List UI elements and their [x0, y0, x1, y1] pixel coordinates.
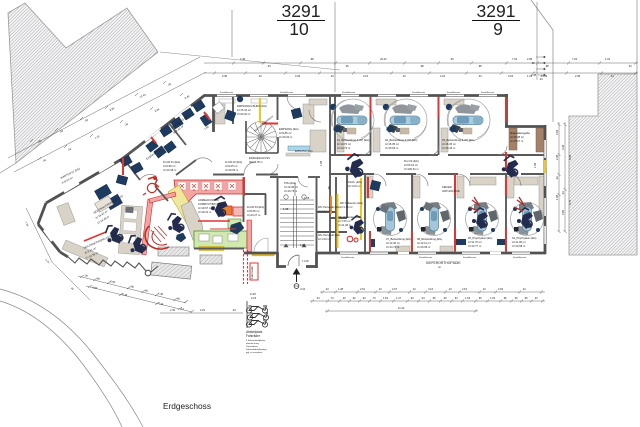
- svg-text:WC Personal (EG): WC Personal (EG): [318, 205, 340, 209]
- svg-text:.62: .62: [352, 296, 356, 300]
- svg-text:EMPFANG (EG): EMPFANG (EG): [295, 150, 313, 153]
- svg-text:.23: .23: [402, 74, 406, 78]
- svg-text:.24: .24: [232, 308, 236, 312]
- svg-text:1.90: 1.90: [158, 291, 164, 296]
- svg-text:Kastellfenster: Kastellfenster: [447, 91, 461, 94]
- svg-text:2.38: 2.38: [555, 154, 559, 160]
- svg-text:.94: .94: [410, 296, 414, 300]
- svg-text:.24: .24: [325, 287, 329, 291]
- svg-text:.98: .98: [531, 61, 535, 65]
- svg-text:A=2.04 m²: A=2.04 m²: [318, 209, 331, 213]
- svg-text:Kastellfenster: Kastellfenster: [220, 91, 234, 94]
- svg-text:WC Patienten (EG): WC Patienten (EG): [340, 201, 363, 205]
- svg-text:3.16: 3.16: [428, 287, 434, 291]
- svg-text:U=16.46 m: U=16.46 m: [442, 146, 456, 150]
- svg-text:U=15.08 m: U=15.08 m: [417, 245, 431, 249]
- svg-text:.13: .13: [482, 287, 486, 291]
- svg-text:überdachung: überdachung: [246, 342, 260, 345]
- svg-text:ORTHOPÄDIE: ORTHOPÄDIE: [442, 189, 460, 193]
- svg-text:.94: .94: [362, 296, 366, 300]
- svg-text:12.43: 12.43: [139, 92, 147, 99]
- svg-text:KOMBI 5/7/8/9 (EG): KOMBI 5/7/8/9 (EG): [198, 202, 222, 206]
- svg-text:1.63: 1.63: [383, 296, 389, 300]
- svg-text:ggf. zu erweitern: ggf. zu erweitern: [246, 351, 263, 354]
- svg-text:U=14.70 m: U=14.70 m: [337, 146, 351, 150]
- svg-text:Kastellfenster: Kastellfenster: [280, 91, 294, 94]
- svg-text:2.46: 2.46: [170, 308, 176, 312]
- svg-text:A=7.05 m²: A=7.05 m²: [338, 219, 351, 223]
- svg-text:KIEFERORTHOPÄDIE: KIEFERORTHOPÄDIE: [426, 261, 461, 265]
- svg-text:2.67: 2.67: [392, 287, 398, 291]
- svg-text:02_Behandlung & OP (EG): 02_Behandlung & OP (EG): [385, 138, 417, 142]
- svg-text:.63: .63: [443, 296, 447, 300]
- svg-text:1.98: 1.98: [203, 124, 210, 131]
- svg-text:5 Fahrradstellplätze: 5 Fahrradstellplätze: [246, 339, 266, 342]
- svg-text:.36: .36: [84, 273, 89, 278]
- svg-text:.36: .36: [124, 122, 129, 127]
- svg-text:Kastellfenster: Kastellfenster: [419, 256, 433, 259]
- svg-text:Kastellfenster: Kastellfenster: [342, 91, 356, 94]
- svg-text:7.04: 7.04: [572, 57, 578, 61]
- svg-text:.98: .98: [310, 57, 314, 61]
- svg-text:± 0.00: ± 0.00: [302, 260, 309, 263]
- svg-text:2.48: 2.48: [240, 57, 246, 61]
- svg-text:05_Prophylaxe (EG): 05_Prophylaxe (EG): [468, 236, 492, 240]
- svg-text:U=100.61 m: U=100.61 m: [404, 167, 419, 171]
- svg-text:.96: .96: [503, 296, 507, 300]
- svg-text:1.98: 1.98: [533, 162, 537, 168]
- svg-text:.36: .36: [345, 64, 349, 68]
- svg-text:3.23: 3.23: [200, 308, 206, 312]
- svg-text:A=9.85 m²: A=9.85 m²: [279, 131, 292, 135]
- svg-text:U=18.31 m: U=18.31 m: [198, 210, 212, 214]
- svg-text:RH=2.78 m: RH=2.78 m: [249, 160, 263, 164]
- svg-text:FLUR 02 (EG): FLUR 02 (EG): [225, 160, 242, 164]
- svg-text:2.48: 2.48: [531, 73, 537, 77]
- svg-text:3.23: 3.23: [251, 296, 257, 300]
- svg-text:TRH (EG): TRH (EG): [284, 181, 296, 185]
- svg-text:FLUR 01 (EG): FLUR 01 (EG): [163, 160, 180, 164]
- svg-text:Fahrräder: Fahrräder: [250, 266, 254, 279]
- svg-text:1.38: 1.38: [338, 287, 344, 291]
- svg-text:.96: .96: [478, 296, 482, 300]
- svg-text:4.85: 4.85: [561, 209, 565, 215]
- svg-text:03_Behandlung & OP (EG): 03_Behandlung & OP (EG): [442, 138, 474, 142]
- svg-text:A=13.11 m²: A=13.11 m²: [417, 241, 431, 245]
- svg-text:.24: .24: [555, 176, 559, 180]
- svg-text:Kastellfenster: Kastellfenster: [412, 91, 426, 94]
- svg-text:9: 9: [493, 19, 503, 39]
- svg-text:2.86: 2.86: [92, 285, 98, 290]
- svg-text:.23: .23: [534, 296, 538, 300]
- svg-text:3291: 3291: [477, 1, 516, 21]
- svg-text:.98: .98: [327, 186, 331, 190]
- svg-text:U=16.00 m: U=16.00 m: [279, 135, 293, 139]
- svg-text:08_Behandlung (EG): 08_Behandlung (EG): [417, 237, 442, 241]
- svg-text:A=8.05 m²: A=8.05 m²: [247, 209, 260, 213]
- svg-text:.42: .42: [67, 147, 72, 152]
- svg-text:4.72: 4.72: [44, 258, 51, 265]
- svg-text:2.84: 2.84: [555, 129, 559, 135]
- svg-text:A=1.53 m²: A=1.53 m²: [318, 237, 331, 241]
- svg-text:7.04: 7.04: [512, 57, 518, 61]
- svg-text:2.48: 2.48: [184, 94, 191, 100]
- svg-text:Putzk. (EG): Putzk. (EG): [348, 180, 362, 184]
- svg-text:01_Behandlung & OP (EG): 01_Behandlung & OP (EG): [337, 138, 369, 142]
- svg-text:Kastellfenster: Kastellfenster: [463, 256, 477, 259]
- svg-text:A=50.61 m²: A=50.61 m²: [404, 163, 418, 167]
- svg-text:1.08: 1.08: [304, 196, 310, 200]
- svg-text:U=13.38 m: U=13.38 m: [163, 168, 177, 172]
- svg-text:2.98: 2.98: [109, 106, 116, 112]
- svg-text:.98: .98: [84, 118, 89, 123]
- svg-text:2.98: 2.98: [527, 57, 533, 61]
- svg-text:.73: .73: [372, 296, 376, 300]
- svg-text:Fahrräder: Fahrräder: [246, 334, 261, 338]
- svg-text:2.20: 2.20: [250, 292, 256, 296]
- svg-text:A=15.35 m²: A=15.35 m²: [385, 142, 399, 146]
- svg-text:3291: 3291: [282, 1, 321, 21]
- svg-text:WC Personal (EG): WC Personal (EG): [318, 233, 340, 237]
- svg-text:ANMELDUNG m²: ANMELDUNG m²: [198, 198, 219, 202]
- svg-text:.94: .94: [454, 296, 458, 300]
- svg-text:U=13.58 m: U=13.58 m: [512, 244, 526, 248]
- svg-text:7.26: 7.26: [24, 221, 30, 228]
- svg-text:1.04: 1.04: [605, 57, 611, 61]
- svg-text:.40: .40: [42, 158, 47, 163]
- svg-text:.23: .23: [330, 74, 334, 78]
- svg-text:.98: .98: [478, 64, 482, 68]
- svg-text:FLUR 03 (EG): FLUR 03 (EG): [247, 205, 264, 209]
- svg-text:3.39: 3.39: [295, 74, 301, 78]
- svg-text:A=13.00 m²: A=13.00 m²: [284, 185, 298, 189]
- svg-text:U=44.27 m: U=44.27 m: [247, 213, 261, 217]
- svg-text:.40: .40: [342, 296, 346, 300]
- svg-text:U=19.66 m: U=19.66 m: [225, 168, 239, 172]
- svg-text:1.53: 1.53: [465, 296, 471, 300]
- svg-text:.98: .98: [545, 64, 549, 68]
- svg-text:10: 10: [289, 19, 309, 39]
- svg-text:A=1.00 m²: A=1.00 m²: [348, 184, 361, 188]
- svg-text:.23: .23: [258, 74, 262, 78]
- svg-text:A=19.67 m²: A=19.67 m²: [198, 206, 212, 210]
- svg-text:3.38: 3.38: [222, 74, 228, 78]
- svg-text:32.23: 32.23: [380, 57, 387, 61]
- svg-text:U=15.69 m: U=15.69 m: [385, 146, 399, 150]
- svg-text:.13: .13: [412, 287, 416, 291]
- svg-text:3.38: 3.38: [561, 144, 565, 150]
- svg-text:Kastellfenster: Kastellfenster: [513, 256, 527, 259]
- svg-text:.04: .04: [421, 296, 425, 300]
- svg-text:.96: .96: [524, 296, 528, 300]
- svg-text:U=15.76 m: U=15.76 m: [284, 189, 298, 193]
- svg-text:1.47: 1.47: [396, 296, 402, 300]
- svg-text:A=13.40 m²: A=13.40 m²: [386, 241, 400, 245]
- svg-text:.36: .36: [514, 296, 518, 300]
- svg-text:Vorhandene: Vorhandene: [246, 345, 259, 348]
- svg-text:2.48: 2.48: [575, 74, 581, 78]
- svg-text:1.08: 1.08: [300, 243, 306, 247]
- svg-text:2.63: 2.63: [498, 287, 504, 291]
- svg-text:1.19: 1.19: [94, 134, 101, 140]
- svg-text:.98: .98: [420, 64, 424, 68]
- svg-text:EMPFANG (EG): EMPFANG (EG): [279, 127, 299, 131]
- svg-text:A=15.42 m²: A=15.42 m²: [237, 108, 251, 112]
- svg-text:8.28: 8.28: [568, 154, 572, 160]
- svg-text:.96: .96: [432, 296, 436, 300]
- svg-text:4.23: 4.23: [440, 74, 446, 78]
- svg-text:.23: .23: [478, 74, 482, 78]
- svg-text:U=14.70 m: U=14.70 m: [386, 245, 400, 249]
- svg-text:.24: .24: [522, 287, 526, 291]
- svg-text:A=6.96 m²: A=6.96 m²: [163, 164, 176, 168]
- svg-text:WC Patienten (EG): WC Patienten (EG): [338, 215, 361, 219]
- svg-text:4.15: 4.15: [363, 74, 369, 78]
- svg-text:Kastellfenster: Kastellfenster: [481, 91, 495, 94]
- svg-text:EMPFANGS BÜRO (EG): EMPFANGS BÜRO (EG): [237, 104, 267, 108]
- svg-text:3.48: 3.48: [122, 292, 128, 297]
- svg-text:m²: m²: [438, 266, 441, 269]
- svg-text:.24: .24: [267, 64, 271, 68]
- svg-text:2.51: 2.51: [462, 287, 468, 291]
- svg-text:A=11.38 m²: A=11.38 m²: [512, 240, 526, 244]
- svg-text:A=15.38 m²: A=15.38 m²: [510, 135, 524, 139]
- svg-text:4.79: 4.79: [568, 199, 572, 205]
- svg-text:11.42: 11.42: [398, 306, 405, 310]
- svg-text:A=16.45 m²: A=16.45 m²: [442, 142, 456, 146]
- svg-text:.24: .24: [539, 77, 543, 81]
- svg-text:2.51: 2.51: [360, 287, 366, 291]
- svg-text:U=13.77 m: U=13.77 m: [468, 244, 482, 248]
- svg-text:04_Prophylaxe (EG): 04_Prophylaxe (EG): [512, 236, 536, 240]
- svg-text:4.53: 4.53: [508, 74, 514, 78]
- svg-text:A=11.76 m²: A=11.76 m²: [468, 240, 482, 244]
- svg-text:U=15.07 m: U=15.07 m: [510, 139, 524, 143]
- svg-text:.73: .73: [330, 296, 334, 300]
- svg-text:A=13.70 m²: A=13.70 m²: [337, 142, 351, 146]
- svg-text:KIEFER: KIEFER: [442, 185, 452, 189]
- svg-text:Flur 04 (EG): Flur 04 (EG): [404, 159, 419, 163]
- svg-text:U=11.48 m: U=11.48 m: [338, 223, 352, 227]
- svg-text:2.98: 2.98: [154, 107, 161, 113]
- svg-text:1.98: 1.98: [283, 207, 289, 211]
- svg-text:- 0.02: - 0.02: [299, 288, 306, 291]
- svg-text:Materialausgabe: Materialausgabe: [510, 131, 530, 135]
- svg-text:1.03: 1.03: [490, 296, 496, 300]
- svg-text:.24: .24: [316, 296, 320, 300]
- svg-text:.24: .24: [561, 191, 565, 195]
- svg-text:U=20.00 m: U=20.00 m: [237, 112, 251, 116]
- svg-text:Kastellfenster: Kastellfenster: [341, 256, 355, 259]
- svg-text:1.98: 1.98: [555, 194, 559, 200]
- svg-text:.13: .13: [448, 287, 452, 291]
- svg-text:2.48: 2.48: [158, 301, 164, 306]
- svg-text:.24: .24: [610, 74, 614, 78]
- svg-text:A=1.38 m²: A=1.38 m²: [340, 205, 353, 209]
- svg-text:07_Behandlung (EG): 07_Behandlung (EG): [386, 237, 411, 241]
- svg-text:2.60: 2.60: [110, 279, 116, 284]
- svg-text:A=9.05 m²: A=9.05 m²: [225, 164, 238, 168]
- svg-text:.24: .24: [628, 64, 632, 68]
- svg-text:1.98: 1.98: [319, 160, 323, 166]
- svg-text:ERDGESCHOSS: ERDGESCHOSS: [249, 156, 270, 160]
- svg-text:Erdgeschoss: Erdgeschoss: [163, 401, 211, 411]
- svg-text:Fahrradabstellanlage: Fahrradabstellanlage: [246, 348, 267, 351]
- svg-text:.36: .36: [450, 57, 454, 61]
- svg-text:.36: .36: [69, 286, 75, 292]
- svg-text:.13: .13: [378, 287, 382, 291]
- svg-text:.36: .36: [167, 82, 172, 87]
